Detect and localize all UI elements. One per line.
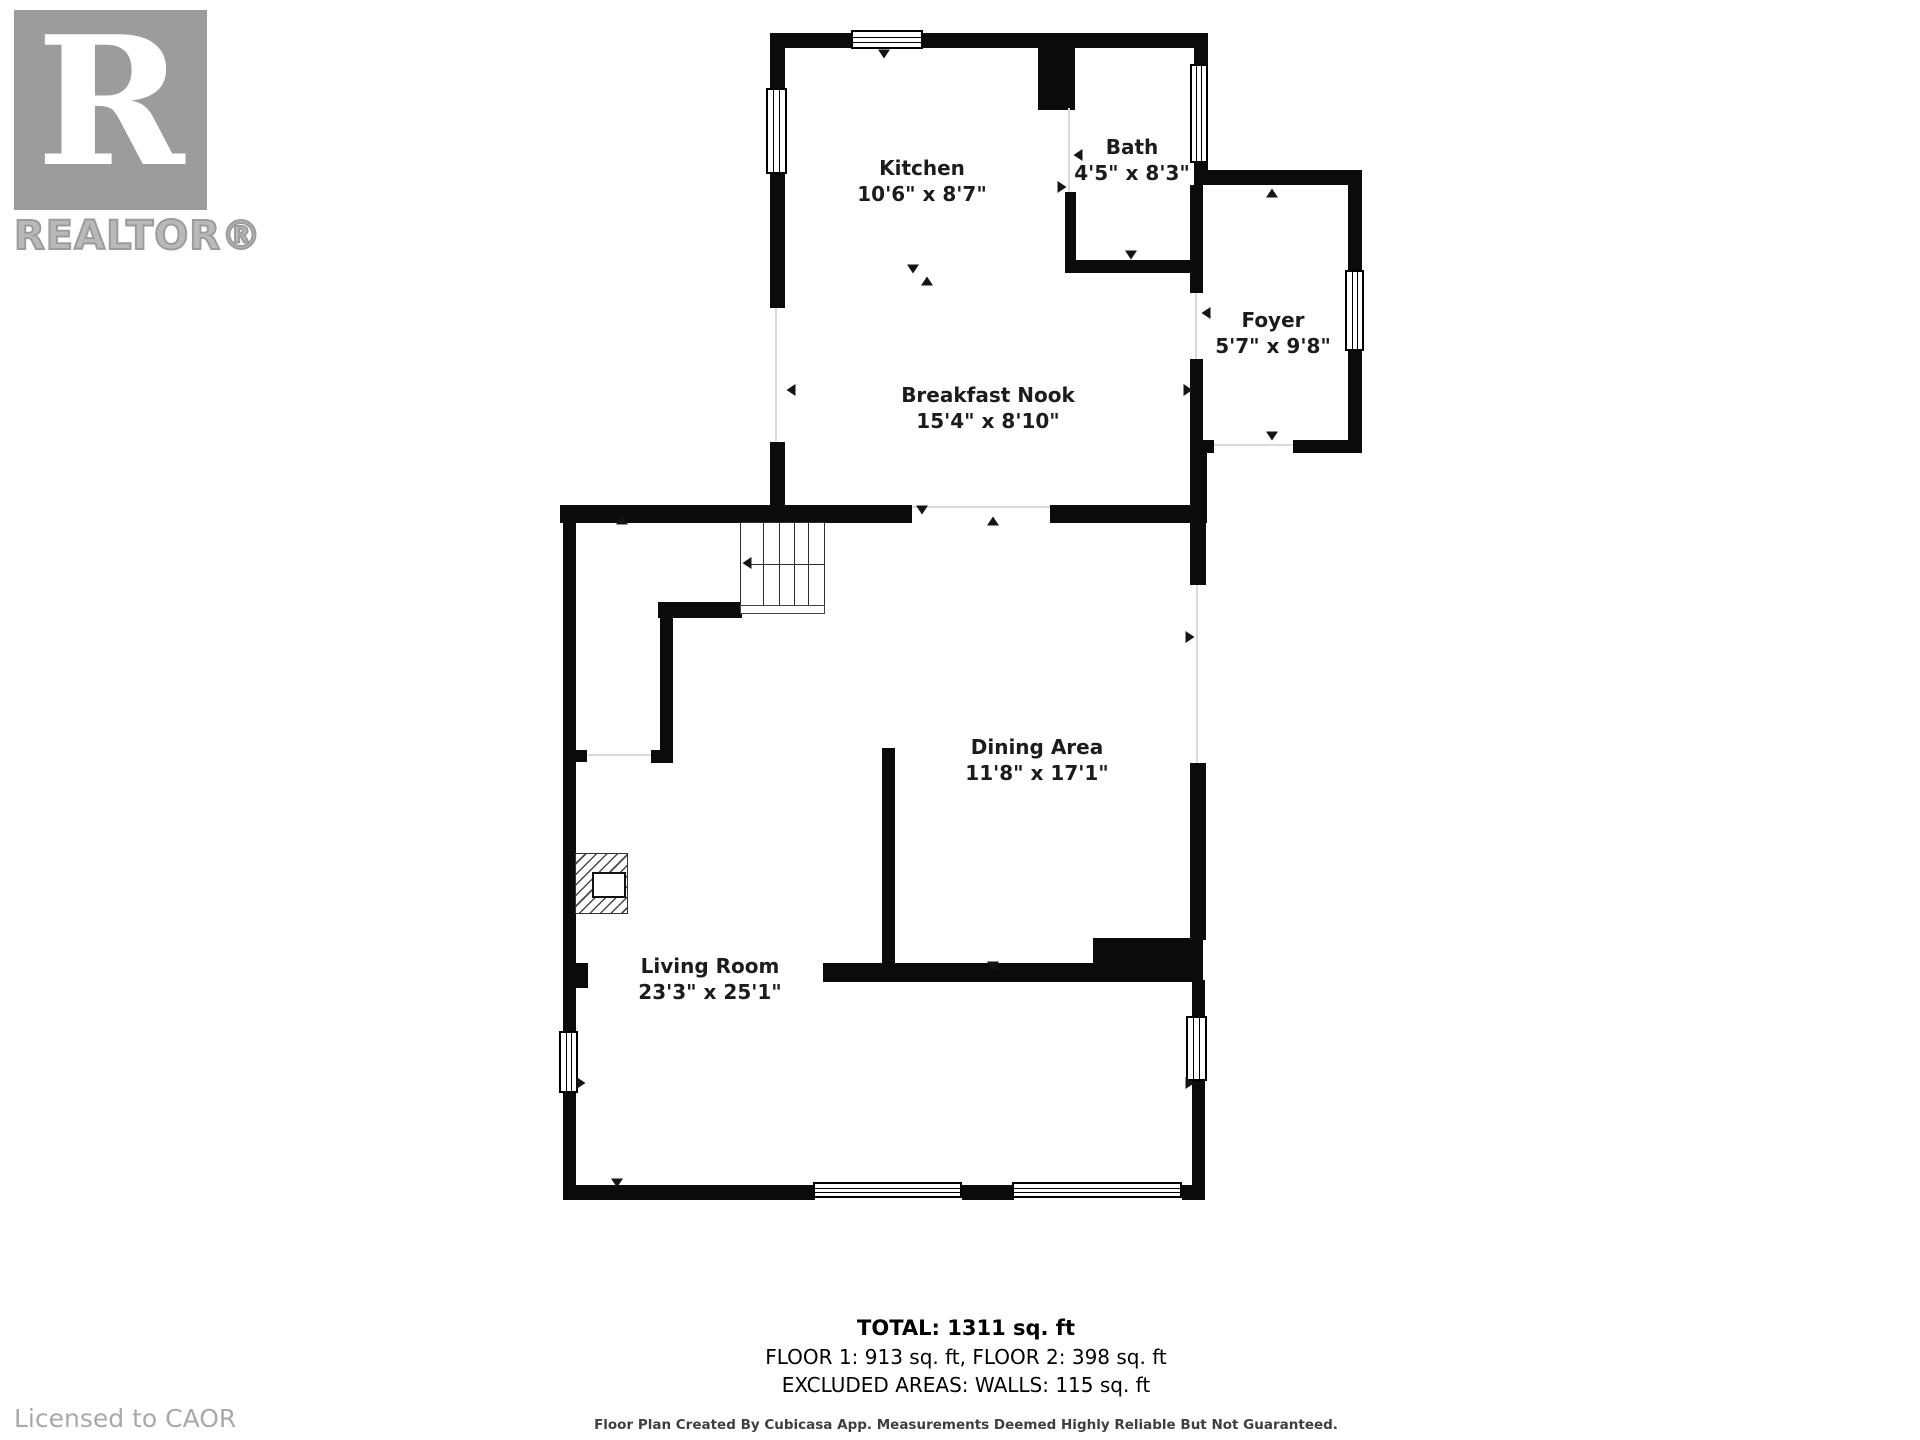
room-dims: 5'7" x 9'8" (1215, 333, 1331, 359)
arrow-icon (987, 517, 999, 526)
total-area-text: TOTAL: 1311 sq. ft (0, 1313, 1920, 1343)
window-bottom-1 (813, 1182, 962, 1198)
wall-foyer-right-1 (1348, 185, 1362, 273)
wall-dining-interior-vertical (882, 748, 895, 980)
room-label-bath: Bath 4'5" x 8'3" (1074, 134, 1190, 186)
wall-top-upper (770, 33, 1208, 48)
arrow-icon (987, 962, 999, 971)
stair-direction-line (745, 564, 824, 565)
wall-left-upper-2 (770, 170, 785, 308)
arrow-icon (907, 265, 919, 274)
wall-foyer-left-1 (1190, 185, 1203, 293)
wall-kitchen-bath-divider (1038, 48, 1075, 110)
wall-bottom-2 (962, 1185, 1014, 1200)
arrow-icon (921, 277, 933, 286)
opening-foyer-bottom (1214, 444, 1293, 446)
arrow-icon (1266, 432, 1278, 441)
arrow-icon (1058, 181, 1067, 193)
arrow-icon (611, 1179, 623, 1188)
opening-closet (588, 754, 651, 756)
wall-chimney-bump (575, 963, 588, 988)
wall-below-foyer (1190, 453, 1207, 523)
wall-right-mid-1 (1190, 523, 1206, 585)
room-label-breakfast-nook: Breakfast Nook 15'4" x 8'10" (901, 382, 1075, 434)
wall-right-mid-2 (1190, 763, 1206, 940)
opening-nook-dining (912, 506, 1050, 508)
room-dims: 4'5" x 8'3" (1074, 160, 1190, 186)
wall-foyer-right-2 (1348, 349, 1362, 453)
room-dims: 15'4" x 8'10" (901, 408, 1075, 434)
arrow-icon (1186, 631, 1195, 643)
room-dims: 10'6" x 8'7" (857, 181, 987, 207)
room-dims: 11'8" x 17'1" (965, 760, 1108, 786)
wall-under-stairs (658, 602, 742, 618)
wall-left-main-1 (563, 505, 576, 1033)
room-name: Foyer (1215, 307, 1331, 333)
wall-closet (660, 603, 673, 753)
arrow-icon (916, 506, 928, 515)
fireplace (575, 853, 628, 914)
room-name: Breakfast Nook (901, 382, 1075, 408)
wall-left-upper-3 (770, 442, 785, 508)
window-kitchen-top (851, 30, 923, 49)
wall-right-low-1 (1192, 980, 1205, 1018)
arrow-icon (616, 516, 628, 525)
wall-foyer-left-2 (1190, 359, 1203, 453)
window-bath-right (1190, 64, 1208, 163)
arrow-icon (577, 1077, 586, 1089)
room-label-kitchen: Kitchen 10'6" x 8'7" (857, 155, 987, 207)
room-name: Bath (1074, 134, 1190, 160)
room-name: Kitchen (857, 155, 987, 181)
room-name: Dining Area (965, 734, 1108, 760)
realtor-wordmark: REALTOR® (14, 213, 214, 259)
window-kitchen-left (766, 88, 787, 174)
arrow-icon (1125, 251, 1137, 260)
fireplace-insert (592, 872, 626, 898)
wall-left-step (575, 750, 587, 762)
window-foyer-right (1345, 270, 1364, 351)
room-label-living-room: Living Room 23'3" x 25'1" (638, 953, 781, 1005)
floor-areas-text: FLOOR 1: 913 sq. ft, FLOOR 2: 398 sq. ft (0, 1343, 1920, 1371)
arrow-icon (787, 384, 796, 396)
arrow-icon (1184, 384, 1193, 396)
excluded-areas-text: EXCLUDED AREAS: WALLS: 115 sq. ft (0, 1371, 1920, 1399)
wall-dining-interior-bottom (823, 963, 1095, 982)
opening-bath-door (1068, 108, 1070, 192)
stair-landing (740, 605, 825, 614)
wall-bottom-right-block (1093, 938, 1203, 982)
wall-bottom-3 (1182, 1185, 1205, 1200)
opening-foyer-door (1195, 293, 1197, 359)
wall-right-low-2 (1192, 1080, 1205, 1187)
arrow-icon (1202, 307, 1211, 319)
window-living-left (559, 1031, 578, 1093)
wall-left-upper-1 (770, 48, 785, 92)
realtor-r-icon: R (14, 2, 207, 202)
area-summary: TOTAL: 1311 sq. ft FLOOR 1: 913 sq. ft, … (0, 1313, 1920, 1433)
wall-left-main-2 (563, 1092, 576, 1200)
staircase (740, 522, 825, 606)
room-dims: 23'3" x 25'1" (638, 979, 781, 1005)
disclaimer-text: Floor Plan Created By Cubicasa App. Meas… (0, 1417, 1920, 1433)
realtor-logo: R (14, 10, 207, 210)
arrow-icon (743, 557, 752, 569)
arrow-icon (1186, 1077, 1195, 1089)
room-name: Living Room (638, 953, 781, 979)
wall-bath-left (1065, 192, 1076, 262)
opening-dining-right (1196, 585, 1198, 763)
arrow-icon (1266, 189, 1278, 198)
wall-mid-top-right (1050, 505, 1192, 523)
wall-foyer-bottom (1293, 440, 1362, 453)
window-living-right (1186, 1016, 1207, 1081)
room-label-dining-area: Dining Area 11'8" x 17'1" (965, 734, 1108, 786)
wall-foyer-top (1197, 170, 1362, 185)
wall-closet-foot (651, 750, 673, 763)
opening-kitchen-left (775, 308, 777, 442)
arrow-icon (878, 50, 890, 59)
window-bottom-2 (1012, 1182, 1182, 1198)
wall-bath-bottom (1065, 260, 1197, 273)
wall-bottom-1 (563, 1185, 815, 1200)
wall-mid-top-left (560, 505, 912, 523)
room-label-foyer: Foyer 5'7" x 9'8" (1215, 307, 1331, 359)
floorplan-canvas: R REALTOR® Licensed to CAOR (0, 0, 1920, 1440)
